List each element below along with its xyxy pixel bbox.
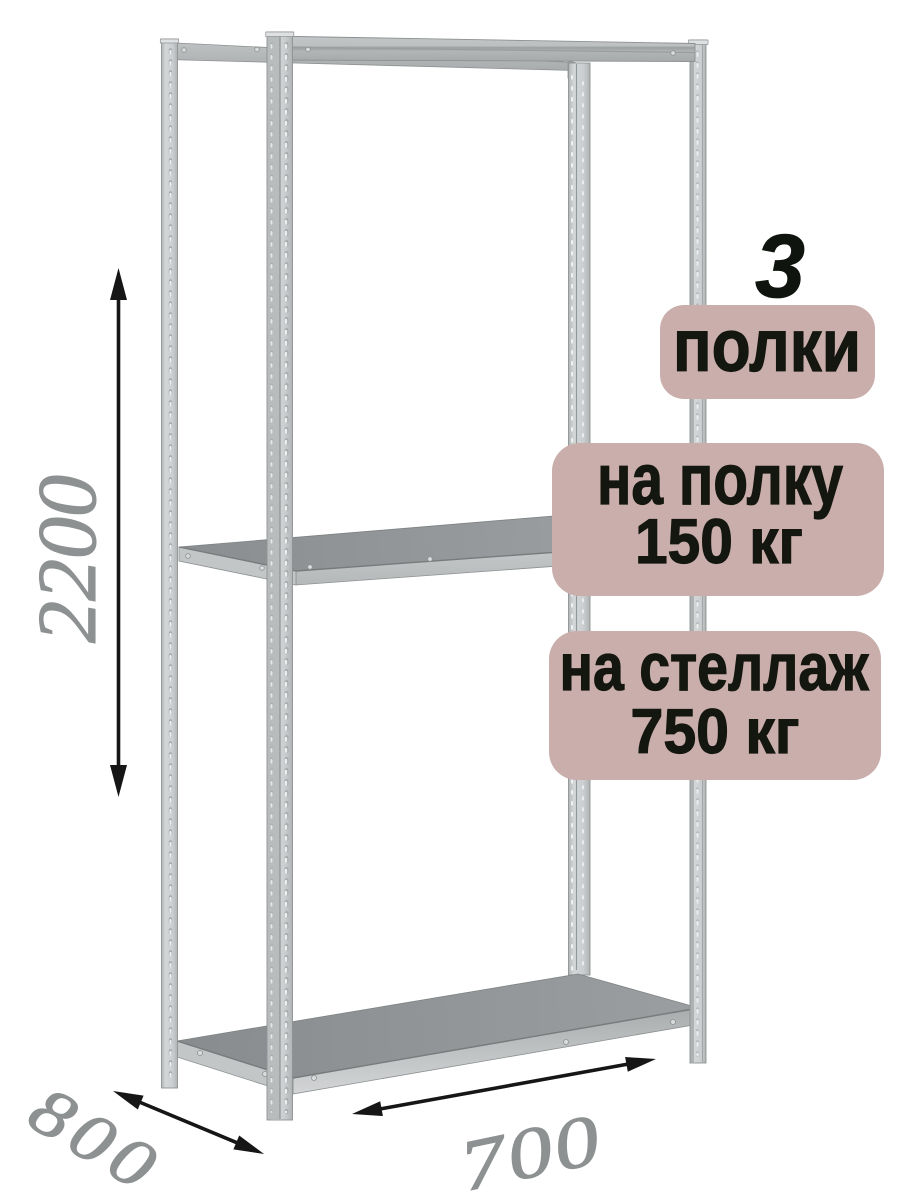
svg-text:3: 3 (755, 217, 805, 317)
svg-text:2200: 2200 (21, 475, 114, 643)
svg-text:полки: полки (673, 304, 861, 387)
svg-text:на стеллаж: на стеллаж (560, 630, 870, 705)
svg-text:150 кг: 150 кг (635, 507, 803, 577)
svg-text:750 кг: 750 кг (631, 697, 800, 767)
